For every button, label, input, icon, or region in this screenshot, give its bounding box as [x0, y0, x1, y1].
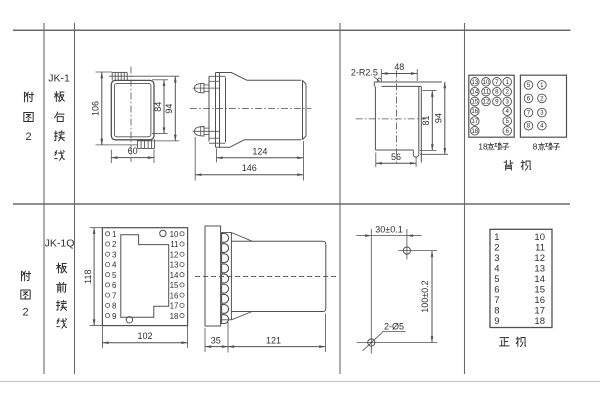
svg-text:3: 3 — [494, 253, 499, 264]
svg-text:11: 11 — [535, 242, 545, 253]
svg-text:14: 14 — [170, 271, 179, 280]
svg-text:121: 121 — [266, 335, 281, 345]
svg-text:6: 6 — [527, 95, 531, 102]
svg-text:8: 8 — [112, 302, 117, 311]
svg-text:13: 13 — [534, 263, 545, 274]
svg-text:94: 94 — [164, 104, 174, 114]
svg-text:14: 14 — [534, 274, 545, 285]
svg-text:124: 124 — [252, 146, 267, 156]
svg-text:10: 10 — [483, 79, 490, 86]
svg-text:1: 1 — [494, 232, 499, 243]
svg-text:7: 7 — [495, 79, 499, 86]
svg-text:30±0.1: 30±0.1 — [375, 224, 402, 234]
svg-text:15: 15 — [534, 285, 545, 296]
svg-text:17: 17 — [170, 302, 179, 311]
svg-text:12: 12 — [534, 253, 545, 264]
svg-text:16: 16 — [170, 291, 179, 300]
svg-text:4: 4 — [540, 123, 544, 130]
svg-text:18: 18 — [471, 128, 478, 135]
svg-text:4: 4 — [505, 108, 509, 115]
svg-text:JK-1: JK-1 — [48, 73, 70, 85]
svg-text:10: 10 — [534, 232, 545, 243]
svg-text:5: 5 — [494, 274, 499, 285]
svg-text:JK-1Q: JK-1Q — [45, 238, 75, 250]
svg-text:4: 4 — [494, 263, 499, 274]
svg-text:35: 35 — [211, 335, 221, 345]
svg-text:2-Ø5: 2-Ø5 — [384, 322, 404, 332]
svg-text:1: 1 — [112, 230, 117, 239]
svg-text:146: 146 — [242, 163, 257, 173]
svg-text:6: 6 — [505, 128, 509, 135]
svg-text:56: 56 — [391, 152, 401, 162]
svg-text:15: 15 — [471, 99, 478, 106]
svg-text:5: 5 — [527, 82, 531, 89]
svg-text:7: 7 — [112, 291, 117, 300]
svg-text:3: 3 — [505, 99, 509, 106]
svg-text:60: 60 — [128, 146, 138, 156]
svg-text:81: 81 — [421, 115, 431, 125]
svg-text:3: 3 — [540, 110, 544, 117]
svg-text:12: 12 — [483, 99, 490, 106]
svg-text:102: 102 — [137, 331, 152, 341]
svg-text:2: 2 — [25, 131, 31, 143]
svg-text:118: 118 — [83, 269, 93, 283]
svg-text:9: 9 — [494, 316, 499, 327]
svg-text:7: 7 — [494, 295, 499, 306]
svg-text:17: 17 — [534, 306, 545, 317]
svg-text:2: 2 — [505, 89, 509, 96]
svg-text:6: 6 — [112, 281, 117, 290]
svg-text:17: 17 — [471, 118, 478, 125]
svg-text:13: 13 — [170, 261, 179, 270]
svg-text:8: 8 — [495, 89, 499, 96]
svg-text:3: 3 — [112, 250, 117, 259]
svg-text:14: 14 — [471, 89, 478, 96]
svg-text:9: 9 — [495, 99, 499, 106]
svg-text:16: 16 — [471, 108, 478, 115]
svg-text:6: 6 — [494, 285, 499, 296]
svg-text:1: 1 — [540, 82, 544, 89]
svg-text:12: 12 — [170, 250, 179, 259]
svg-text:94: 94 — [434, 113, 444, 123]
svg-text:5: 5 — [112, 271, 117, 280]
svg-text:2: 2 — [22, 307, 28, 319]
svg-text:11: 11 — [170, 240, 179, 249]
svg-text:9: 9 — [112, 312, 117, 321]
svg-text:2: 2 — [494, 242, 499, 253]
svg-text:7: 7 — [527, 110, 531, 117]
svg-text:106: 106 — [91, 101, 101, 116]
svg-text:18: 18 — [170, 312, 179, 321]
svg-text:15: 15 — [170, 281, 179, 290]
svg-text:8: 8 — [533, 141, 538, 151]
svg-text:10: 10 — [170, 230, 179, 239]
svg-text:11: 11 — [483, 89, 490, 96]
svg-text:18: 18 — [534, 316, 545, 327]
svg-text:100±0.2: 100±0.2 — [420, 280, 430, 312]
svg-text:84: 84 — [153, 102, 163, 112]
svg-text:48: 48 — [394, 62, 404, 72]
svg-text:2: 2 — [540, 95, 544, 102]
svg-text:4: 4 — [112, 261, 117, 270]
svg-text:13: 13 — [471, 79, 478, 86]
svg-text:1: 1 — [505, 79, 509, 86]
svg-text:8: 8 — [494, 306, 499, 317]
svg-text:18: 18 — [478, 141, 488, 151]
svg-text:2-R2.5: 2-R2.5 — [351, 68, 378, 78]
svg-text:2: 2 — [112, 240, 117, 249]
svg-text:5: 5 — [505, 118, 509, 125]
svg-text:16: 16 — [534, 295, 545, 306]
svg-text:8: 8 — [527, 123, 531, 130]
